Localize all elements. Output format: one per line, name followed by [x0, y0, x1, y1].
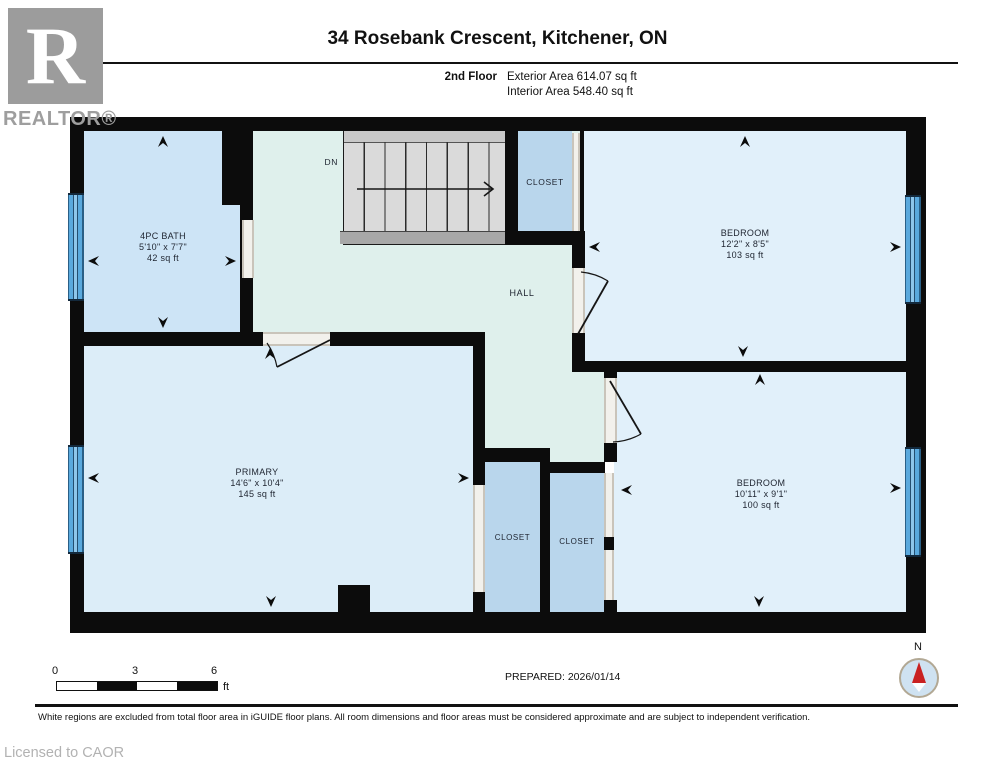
window-bath [68, 193, 84, 301]
wall-top [70, 117, 926, 131]
primary-dims: 14'6" x 10'4" [197, 478, 317, 489]
door-closet-right-lower [604, 550, 614, 600]
exterior-area: Exterior Area 614.07 sq ft [507, 71, 637, 83]
prepared-date: PREPARED: 2026/01/14 [505, 671, 620, 683]
wall-closet-top-edge [580, 131, 584, 231]
bedroom-top-label: BEDROOM 12'2" x 8'5" 103 sq ft [685, 228, 805, 261]
window-bedroom-top [905, 195, 921, 304]
wall-bottom [70, 612, 926, 633]
wall-closet-right-stub [604, 600, 617, 612]
bedroom-bottom-label: BEDROOM 10'11" x 9'1" 100 sq ft [701, 478, 821, 511]
primary-label: PRIMARY 14'6" x 10'4" 145 sq ft [197, 467, 317, 500]
interior-area: Interior Area 548.40 sq ft [507, 86, 633, 98]
hall-label: HALL [500, 288, 544, 298]
scale-segment [97, 682, 137, 690]
realtor-wordmark: REALTOR® [3, 108, 133, 131]
scale-segment [137, 682, 177, 690]
scale-bar [56, 681, 218, 691]
wall-closet-left-upper [473, 448, 485, 485]
closet-top-label: CLOSET [518, 177, 572, 187]
compass-needle-north [912, 662, 926, 683]
door-bath [242, 220, 254, 278]
page-title: 34 Rosebank Crescent, Kitchener, ON [0, 28, 995, 50]
compass-needle-south [912, 683, 926, 692]
door-bedroom-bottom [604, 378, 617, 443]
realtor-r-icon: R [26, 15, 85, 97]
bath-label: 4PC BATH 5'10" x 7'7" 42 sq ft [103, 231, 223, 264]
bedroom-bottom-area-label: 100 sq ft [701, 500, 821, 511]
bedroom-bottom-name: BEDROOM [701, 478, 821, 489]
header-rule [35, 62, 958, 64]
bedroom-bottom-dims: 10'11" x 9'1" [701, 489, 821, 500]
wall-primary-bump [338, 585, 370, 612]
scale-segment [177, 682, 217, 690]
primary-name: PRIMARY [197, 467, 317, 478]
scale-unit: ft [223, 681, 229, 693]
bedroom-top-dims: 12'2" x 8'5" [685, 239, 805, 250]
window-bedroom-bottom [905, 447, 921, 557]
door-closet-right-upper [604, 473, 614, 537]
bath-area-label: 42 sq ft [103, 253, 223, 264]
wall-closet-left-lower [473, 592, 485, 612]
window-primary [68, 445, 84, 554]
door-closet-left [473, 485, 485, 592]
closet-left-label: CLOSET [485, 533, 540, 542]
wall-closet-right-notch [604, 537, 614, 550]
wall-bath-chase [222, 131, 253, 205]
wall-below-closet-top [505, 231, 585, 245]
door-bedroom-top [572, 268, 585, 333]
floor-label: 2nd Floor [380, 71, 497, 83]
door-closet-top [572, 133, 580, 231]
wall-closet-right-top [550, 462, 605, 473]
stair-treads [344, 142, 506, 233]
bath-name: 4PC BATH [103, 231, 223, 242]
stairs-dn-label: DN [314, 157, 338, 167]
disclaimer-text: White regions are excluded from total fl… [38, 712, 958, 723]
door-primary [263, 332, 330, 346]
wall-stairs-closet [505, 129, 518, 245]
floor-plan-page: R REALTOR® 34 Rosebank Crescent, Kitchen… [0, 0, 995, 768]
scale-segment [57, 682, 97, 690]
footer-rule [35, 704, 958, 707]
bedroom-top-name: BEDROOM [685, 228, 805, 239]
staircase [343, 130, 507, 245]
scale-end: 6 [211, 665, 217, 677]
wall-bedroom-divider [572, 361, 906, 372]
bedroom-top-area-label: 103 sq ft [685, 250, 805, 261]
compass-north-label: N [909, 641, 927, 653]
primary-area-label: 145 sq ft [197, 489, 317, 500]
wall-primary-hall [473, 332, 485, 448]
closet-right-label: CLOSET [550, 537, 604, 546]
scale-start: 0 [52, 665, 58, 677]
stair-bottom-edge [340, 231, 508, 244]
realtor-logo: R [8, 8, 103, 104]
license-text: Licensed to CAOR [4, 745, 124, 761]
bath-dims: 5'10" x 7'7" [103, 242, 223, 253]
scale-mid: 3 [132, 665, 138, 677]
compass-icon [899, 658, 939, 698]
wall-between-closets [540, 462, 550, 612]
